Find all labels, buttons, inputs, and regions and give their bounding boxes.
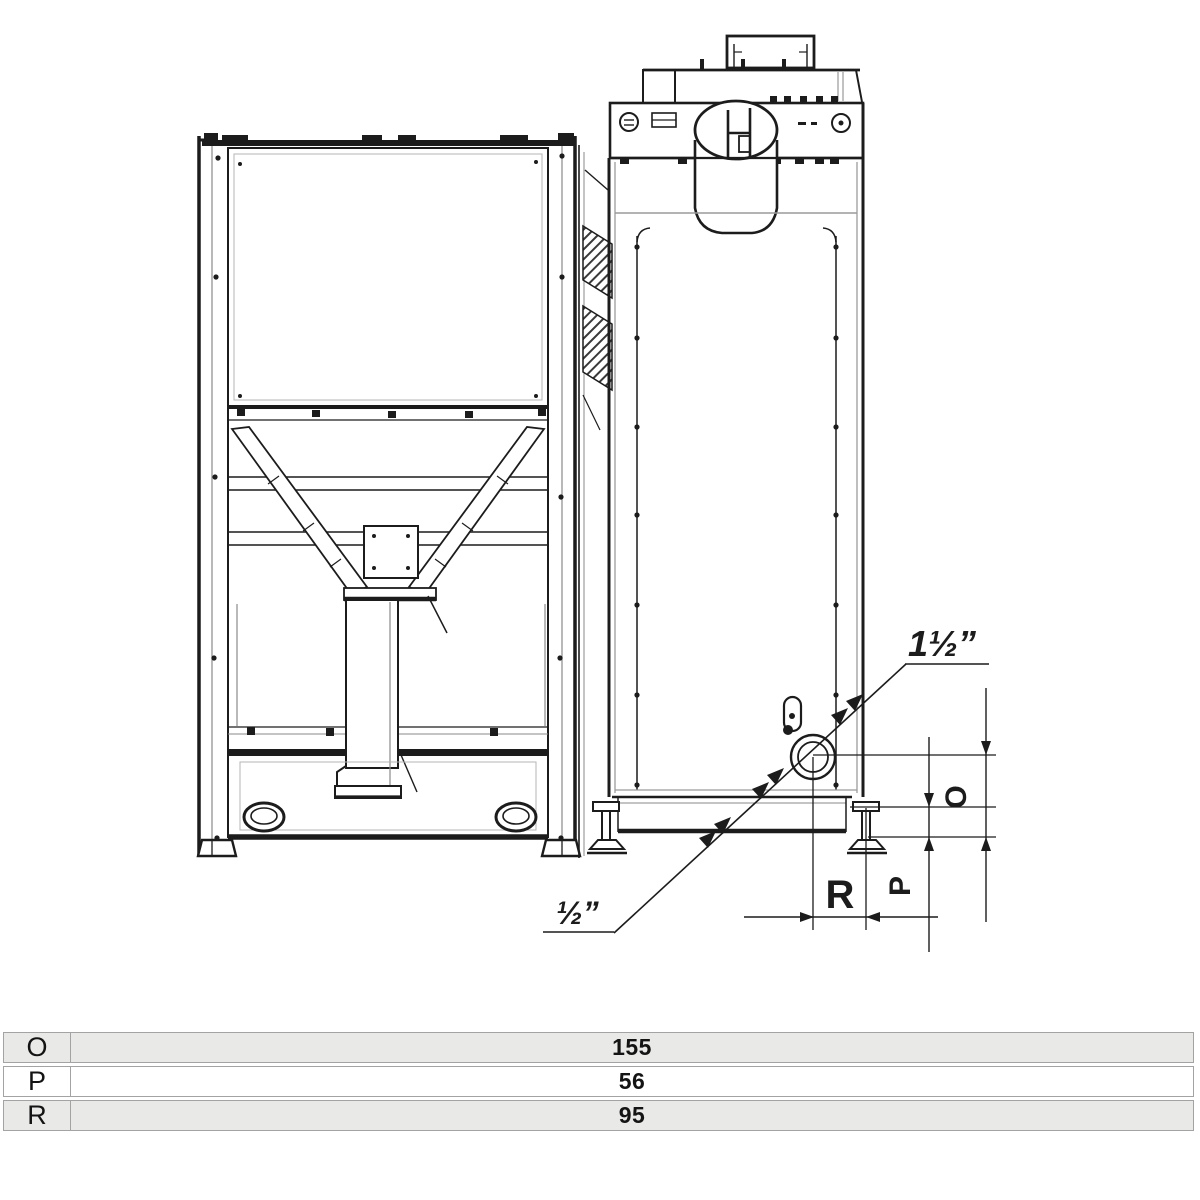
panel-bolts bbox=[238, 160, 538, 398]
dimension-annotations: O P R bbox=[543, 623, 996, 952]
drain-valve bbox=[783, 697, 801, 735]
handle-slot-left bbox=[244, 803, 284, 831]
boiler-foot-left bbox=[587, 802, 627, 853]
leader-arrowheads bbox=[699, 694, 863, 848]
handle-slot-right bbox=[496, 803, 536, 831]
funnel-access-plate bbox=[364, 526, 418, 578]
table-row-value: 155 bbox=[71, 1033, 1193, 1062]
dim-P-label: P bbox=[884, 876, 917, 896]
table-row-label: P bbox=[4, 1067, 71, 1096]
dim-R-label: R bbox=[826, 873, 855, 917]
dimension-drawing: O P R bbox=[0, 0, 1200, 1010]
hopper-top-rail bbox=[202, 133, 574, 146]
pellet-chute bbox=[335, 600, 417, 798]
boiler-unit bbox=[587, 36, 887, 853]
hopper-feet bbox=[198, 840, 580, 856]
dimension-O: O bbox=[940, 688, 991, 922]
body-seam-bolts bbox=[634, 244, 838, 787]
table-row: R 95 bbox=[3, 1100, 1194, 1131]
table-row-value: 95 bbox=[71, 1101, 1193, 1130]
hopper-bottom-panel bbox=[228, 762, 548, 837]
callout-large-pipe: 1½” bbox=[908, 623, 976, 664]
table-row: O 155 bbox=[3, 1032, 1194, 1063]
flue-outlet bbox=[727, 36, 814, 68]
burner-cap bbox=[695, 101, 777, 159]
table-row-label: O bbox=[4, 1033, 71, 1062]
technical-drawing-page: O P R bbox=[0, 0, 1200, 1200]
hopper-mid-band bbox=[228, 408, 548, 420]
hopper-left-post bbox=[199, 136, 228, 856]
table-row-label: R bbox=[4, 1101, 71, 1130]
hopper-unit bbox=[198, 133, 580, 856]
auger-connector bbox=[579, 145, 612, 858]
boiler-foot-right bbox=[847, 802, 887, 853]
dimension-P: P bbox=[884, 737, 934, 952]
dim-O-label: O bbox=[940, 785, 973, 808]
table-row-value: 56 bbox=[71, 1067, 1193, 1096]
boiler-base bbox=[612, 797, 852, 832]
hopper-top-panel bbox=[228, 148, 548, 406]
table-row: P 56 bbox=[3, 1066, 1194, 1097]
callout-small-pipe: ½” bbox=[556, 895, 599, 931]
dimension-table: O 155 P 56 R 95 bbox=[3, 1032, 1194, 1134]
